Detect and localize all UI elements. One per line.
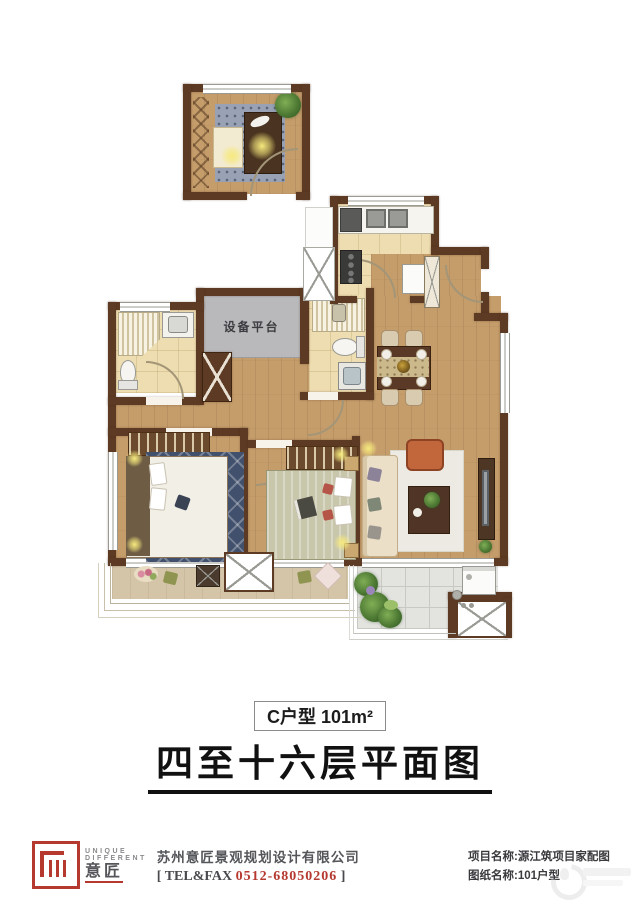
ceiling-light xyxy=(334,534,351,551)
elevator-shaft xyxy=(202,352,232,402)
washing-machine-knob xyxy=(466,574,472,580)
wall xyxy=(196,288,308,296)
logo-shape xyxy=(63,860,66,877)
wall xyxy=(431,247,488,255)
bedroom2-pillow xyxy=(333,476,353,498)
watermark xyxy=(545,856,635,902)
logo-text-block: UNIQUE DIFFERENT 意匠 xyxy=(85,848,147,883)
dining-chair xyxy=(405,330,423,347)
tv-side-plant xyxy=(479,540,492,553)
logo-shape xyxy=(56,860,59,877)
logo-shape xyxy=(49,860,52,877)
watermark-text-shape xyxy=(583,880,623,886)
washing-machine xyxy=(462,566,496,595)
bracket-close: ] xyxy=(341,869,346,884)
floor-drain xyxy=(452,590,462,600)
ac-platform-outline xyxy=(305,207,333,249)
logo-english-line1: UNIQUE xyxy=(85,848,147,855)
balcony-pillow-lattice xyxy=(196,565,220,587)
title-block: C户型 101m² 四至十六层平面图 xyxy=(0,701,640,794)
entry-shoe-cabinet xyxy=(424,256,440,308)
wall xyxy=(296,192,310,200)
bedroom1-pillow xyxy=(149,487,167,511)
ac-platform-kitchen xyxy=(303,247,335,301)
living-armchair xyxy=(406,439,444,471)
kitchen-sink-1 xyxy=(366,209,386,228)
footer-company-block: UNIQUE DIFFERENT 意匠 苏州意匠景观规划设计有限公司 [ TEL… xyxy=(32,841,360,889)
sofa-pillow xyxy=(367,467,382,482)
kitchen-stove xyxy=(340,250,362,284)
sofa-pillow xyxy=(367,497,382,512)
watermark-text-shape xyxy=(583,868,631,876)
coffee-table-dish xyxy=(413,508,422,517)
study-screen xyxy=(193,97,209,188)
logo-english-line2: DIFFERENT xyxy=(85,855,147,862)
kitchen-sink-2 xyxy=(388,209,408,228)
kitchen-rack xyxy=(340,208,362,232)
study-window xyxy=(203,84,291,94)
watermark-dot xyxy=(560,868,569,880)
ceiling-light xyxy=(332,446,349,463)
wall xyxy=(183,192,247,200)
study-plant xyxy=(275,92,301,118)
dining-plate xyxy=(416,349,427,360)
terrace-lavender xyxy=(366,586,375,595)
kitchen-window xyxy=(348,196,424,206)
bath-left-sink-basin xyxy=(168,316,188,333)
bedroom2-pillow xyxy=(333,504,353,526)
telephone-line: [ TEL&FAX 0512-68050206 ] xyxy=(157,869,360,885)
sofa-pillow xyxy=(367,525,382,540)
wall xyxy=(366,288,374,400)
dining-chair xyxy=(381,389,399,406)
dining-centerpiece xyxy=(397,360,410,373)
ceiling-light xyxy=(360,440,377,457)
bath-mid-toilet xyxy=(332,338,358,356)
ac-vent-dot xyxy=(461,603,466,608)
wall xyxy=(183,84,191,200)
bathroom-mid-door-gap xyxy=(308,392,338,400)
equipment-platform-label: 设备平台 xyxy=(203,318,300,335)
dining-window xyxy=(500,333,510,413)
bathroom-left-window xyxy=(120,302,170,312)
unit-type-label: C户型 101m² xyxy=(254,701,386,731)
dining-chair xyxy=(381,330,399,347)
bath-mid-toilet-tank xyxy=(356,336,365,358)
ac-vent-dot xyxy=(469,603,474,608)
balcony-cushion xyxy=(297,570,312,584)
yijiang-logo-icon xyxy=(32,841,80,889)
dining-plate xyxy=(381,349,392,360)
bedroom2-accent-pillow xyxy=(322,509,334,521)
ac-unit-balcony xyxy=(224,552,274,592)
page-title: 四至十六层平面图 xyxy=(148,733,492,794)
terrace-grass xyxy=(384,600,398,610)
bath-left-toilet-tank xyxy=(118,380,138,390)
wall xyxy=(302,84,310,200)
balcony-flowers xyxy=(134,566,158,582)
dining-plate xyxy=(381,376,392,387)
bath-mid-sink-basin xyxy=(343,367,361,385)
coffee-table-plant xyxy=(424,492,440,508)
study-cabinet-light xyxy=(221,145,243,167)
tel-label: TEL&FAX xyxy=(165,869,232,884)
ceiling-light xyxy=(126,450,143,467)
bedroom1-side-window xyxy=(108,452,118,550)
company-name: 苏州意匠景观规划设计有限公司 xyxy=(157,846,360,866)
ceiling-light xyxy=(126,536,143,553)
bracket-open: [ xyxy=(157,869,162,884)
floorplan-page: 设备平台 xyxy=(0,0,640,906)
bath-mid-shower-drain xyxy=(332,304,346,322)
dining-plate xyxy=(416,376,427,387)
company-info: 苏州意匠景观规划设计有限公司 [ TEL&FAX 0512-68050206 ] xyxy=(157,846,360,885)
dining-chair xyxy=(405,389,423,406)
tel-number: 0512-68050206 xyxy=(236,869,338,884)
logo-shape xyxy=(40,851,44,877)
logo-chinese: 意匠 xyxy=(85,864,123,883)
wall xyxy=(337,296,357,303)
bedroom1-pillow xyxy=(149,462,168,486)
tv-screen xyxy=(482,470,489,526)
